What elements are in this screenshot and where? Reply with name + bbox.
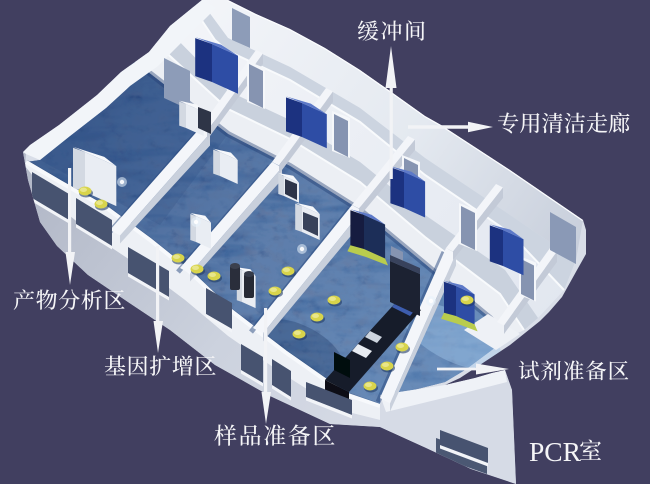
svg-text:PCR: PCR: [529, 436, 582, 467]
